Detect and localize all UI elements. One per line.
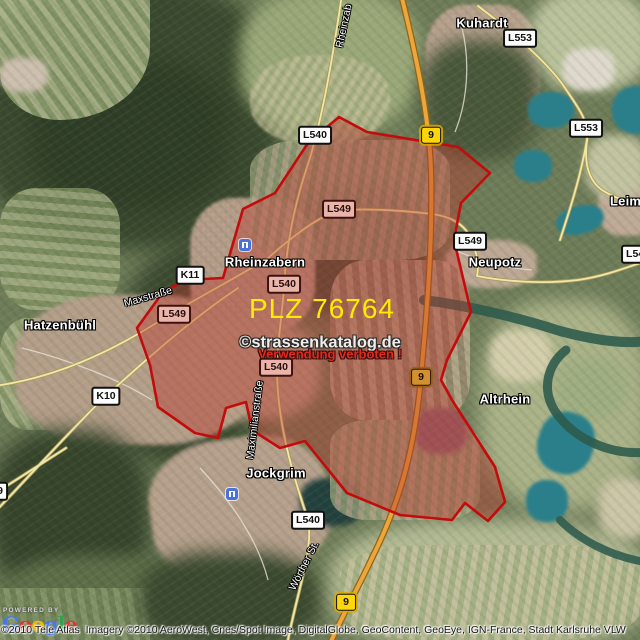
road-badge-l553: L553 — [503, 29, 537, 48]
place-label-hatzenbuehl: Hatzenbühl — [24, 318, 96, 333]
station-icon — [239, 239, 251, 251]
road-badge-l540: L540 — [267, 275, 301, 294]
road-badge-9: 9 — [411, 369, 431, 386]
street-label-rheinzaberner-str: Rheinzab — [334, 3, 355, 49]
road-badge-9: 9 — [0, 482, 8, 501]
road-badge-9: 9 — [336, 594, 356, 611]
road-badge-l549: L549 — [322, 200, 356, 219]
place-label-altrhein: Altrhein — [480, 392, 531, 407]
place-label-rheinzabern: Rheinzabern — [225, 255, 305, 270]
road-badge-9: 9 — [421, 127, 441, 144]
road-badge-l549: L549 — [453, 232, 487, 251]
place-label-neupotz: Neupotz — [469, 255, 522, 270]
road-badge-k11: K11 — [176, 266, 205, 285]
road-badge-l549: L549 — [157, 305, 191, 324]
street-label-woerther-st: Wörther St. — [287, 540, 322, 593]
label-layer: PLZ 76764 ©strassenkatalog.de Verwendung… — [0, 0, 640, 640]
place-label-jockgrim: Jockgrim — [246, 466, 305, 481]
plz-code-label: PLZ 76764 — [249, 293, 395, 325]
road-badge-l540: L540 — [298, 126, 332, 145]
copyright-line: ©2010 Tele Atlas Imagery ©2010 AeroWest,… — [1, 624, 626, 636]
road-badge-l540: L540 — [259, 358, 293, 377]
road-badge-k10: K10 — [91, 387, 120, 406]
place-label-leimersheim: Leimers — [610, 194, 640, 209]
road-badge-l540: L540 — [621, 245, 640, 264]
road-badge-l553: L553 — [569, 119, 603, 138]
station-icon — [226, 488, 238, 500]
street-label-maximilianstrasse: Maximilianstraße — [244, 380, 266, 460]
road-badge-l540: L540 — [291, 511, 325, 530]
place-label-kuhardt: Kuhardt — [456, 16, 507, 31]
map-root[interactable]: PLZ 76764 ©strassenkatalog.de Verwendung… — [0, 0, 640, 640]
